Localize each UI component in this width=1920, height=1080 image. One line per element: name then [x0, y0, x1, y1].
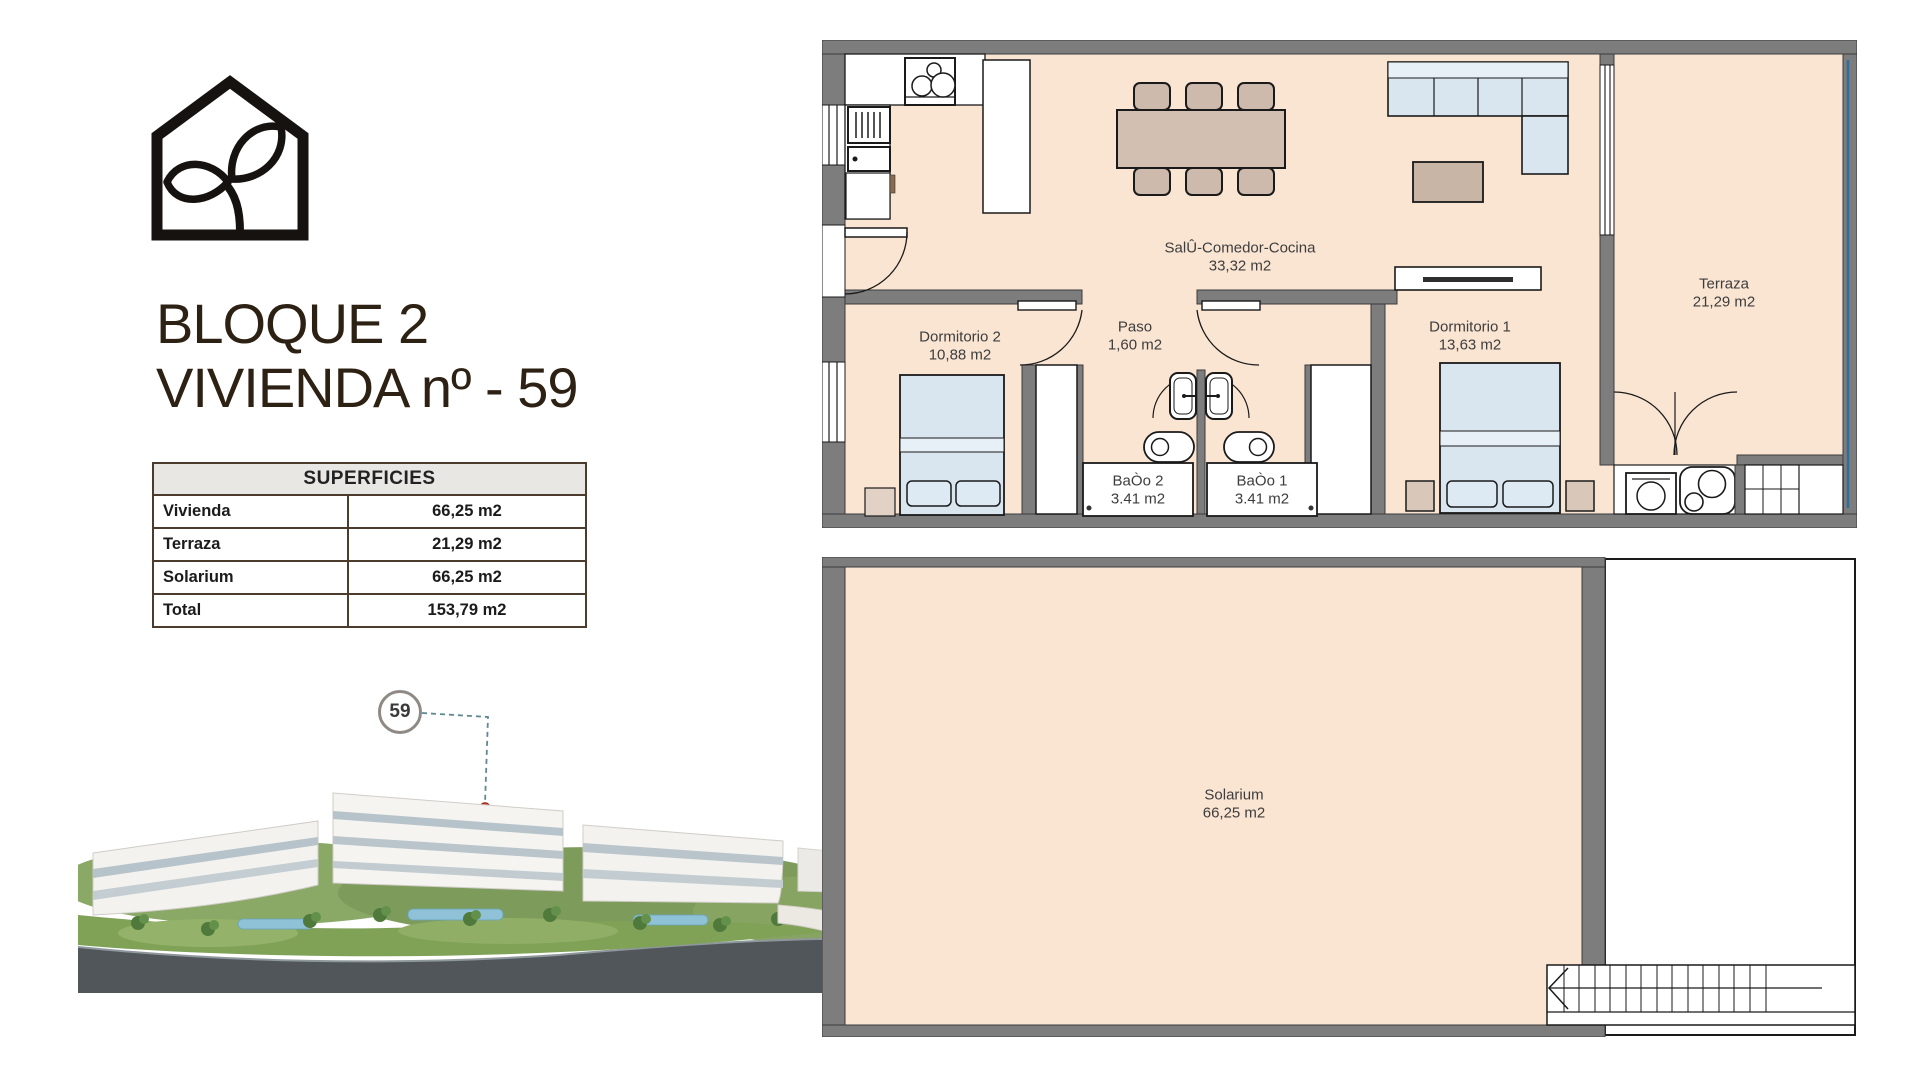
toilet-icon	[1144, 432, 1194, 462]
staircase	[1547, 965, 1855, 1025]
dining-table	[1117, 83, 1285, 195]
page-title-line2: VIVIENDA nº - 59	[156, 356, 578, 420]
superficies-table: SUPERFICIES Vivienda 66,25 m2 Terraza 21…	[152, 462, 587, 628]
vent-grille-icon	[848, 107, 890, 143]
render-building-block-center	[333, 793, 563, 891]
logo-house-seedling-icon	[140, 70, 320, 245]
hob-icon	[905, 58, 955, 105]
table-header: SUPERFICIES	[154, 464, 585, 496]
table-row: Terraza 21,29 m2	[154, 529, 585, 562]
room-label-salon: SalÛ-Comedor-Cocina 33,32 m2	[1165, 240, 1316, 275]
nightstand	[1566, 481, 1594, 511]
row-label: Terraza	[154, 529, 349, 560]
row-value: 66,25 m2	[349, 562, 585, 593]
table-row: Total 153,79 m2	[154, 595, 585, 626]
fridge-handle-icon	[890, 175, 895, 193]
table-row: Solarium 66,25 m2	[154, 562, 585, 595]
floor-plan-vivienda: SalÛ-Comedor-Cocina 33,32 m2 Paso 1,60 m…	[822, 40, 1857, 528]
rug	[865, 488, 895, 516]
tv-unit	[1395, 267, 1541, 290]
coffee-table	[1413, 162, 1483, 202]
room-label-paso: Paso 1,60 m2	[1108, 319, 1162, 354]
room-label-bano2: BaÒo 2 3.41 m2	[1111, 473, 1165, 508]
room-label-dormitorio2: Dormitorio 2 10,88 m2	[919, 329, 1001, 364]
utility-area	[1614, 465, 1843, 514]
page-title-line1: BLOQUE 2	[156, 292, 578, 356]
nightstand	[1406, 481, 1434, 511]
sink-icon	[1170, 373, 1197, 419]
room-label-bano1: BaÒo 1 3.41 m2	[1235, 473, 1289, 508]
roof-plan-solarium: Solarium 66,25 m2	[822, 557, 1857, 1037]
void-area	[1605, 559, 1855, 1035]
laundry-sink-icon	[1680, 467, 1735, 514]
row-value: 66,25 m2	[349, 496, 585, 527]
page-title: BLOQUE 2 VIVIENDA nº - 59	[156, 292, 578, 420]
wardrobe	[1036, 365, 1077, 514]
oven-icon	[848, 147, 890, 171]
row-value: 21,29 m2	[349, 529, 585, 560]
row-label: Solarium	[154, 562, 349, 593]
table-row: Vivienda 66,25 m2	[154, 496, 585, 529]
brochure-page: BLOQUE 2 VIVIENDA nº - 59 SUPERFICIES Vi…	[0, 0, 1920, 1080]
row-value: 153,79 m2	[349, 595, 585, 626]
row-label: Total	[154, 595, 349, 626]
washing-machine-icon	[1626, 473, 1676, 514]
room-label-solarium: Solarium 66,25 m2	[1203, 787, 1266, 822]
wardrobe	[1311, 365, 1371, 514]
room-label-terraza: Terraza 21,29 m2	[1693, 276, 1756, 311]
row-label: Vivienda	[154, 496, 349, 527]
toilet-icon	[1224, 432, 1274, 462]
roof-plan-drawing	[822, 557, 1857, 1037]
sink-icon	[1205, 373, 1232, 419]
kitchen-island	[983, 60, 1030, 213]
stair-grid	[1745, 465, 1799, 514]
cabinet	[846, 173, 890, 219]
room-label-dormitorio1: Dormitorio 1 13,63 m2	[1429, 319, 1511, 354]
